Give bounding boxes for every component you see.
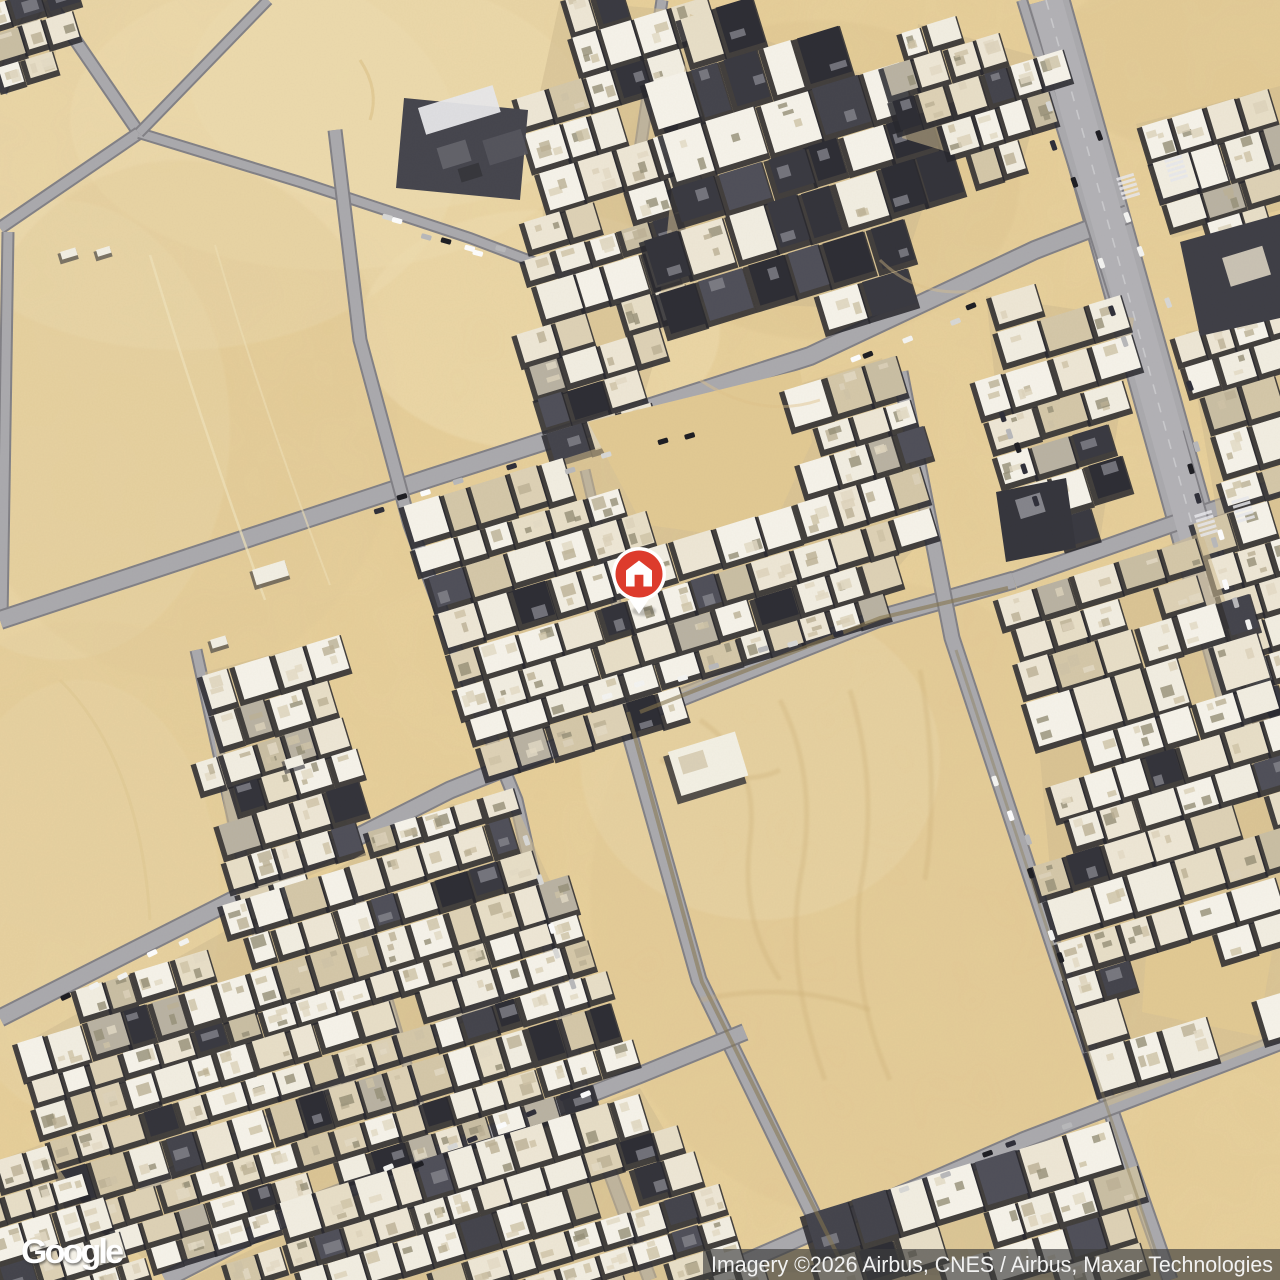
svg-text:Google: Google (21, 1233, 124, 1271)
svg-text:Imagery ©2026 Airbus, CNES / A: Imagery ©2026 Airbus, CNES / Airbus, Max… (711, 1252, 1273, 1277)
